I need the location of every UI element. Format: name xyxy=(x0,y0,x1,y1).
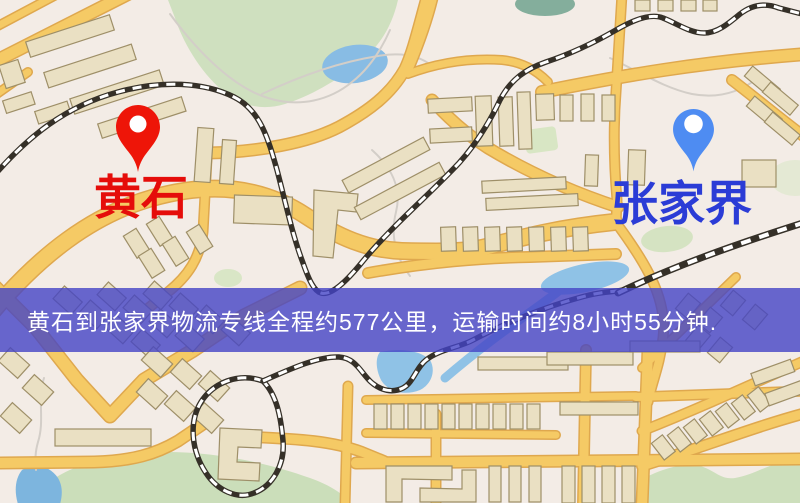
route-info-text: 黄石到张家界物流专线全程约577公里，运输时间约8小时55分钟. xyxy=(0,303,717,337)
red-map-pin-icon xyxy=(112,101,164,177)
map-background xyxy=(0,0,800,503)
origin-city-label: 黄石 xyxy=(94,176,188,223)
route-info-banner: 黄石到张家界物流专线全程约577公里，运输时间约8小时55分钟. xyxy=(0,288,800,352)
destination-city-label: 张家界 xyxy=(611,182,752,229)
blue-map-pin-icon xyxy=(669,105,718,176)
map-canvas: 黄石到张家界物流专线全程约577公里，运输时间约8小时55分钟. 黄石 张家界 xyxy=(0,0,800,503)
